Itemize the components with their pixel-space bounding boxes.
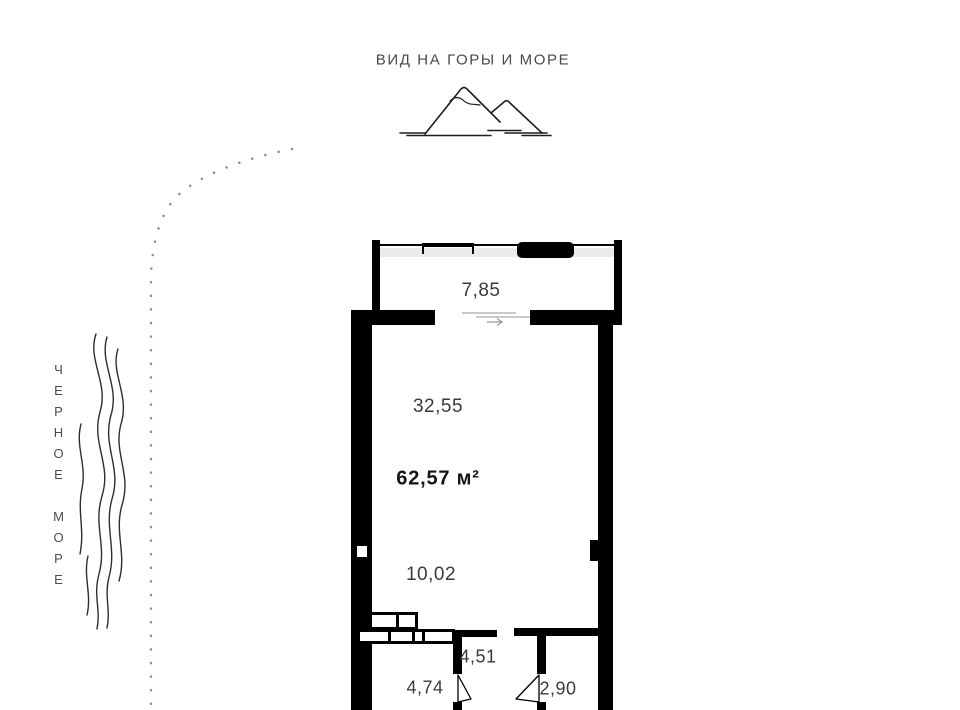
balcony-glazing-band: [380, 248, 616, 257]
mountains-icon: [400, 88, 551, 136]
wall-hall-right: [514, 628, 599, 636]
line-art-layer: [0, 0, 960, 710]
vent-shaft-upper: [369, 612, 418, 630]
balcony-solid-block: [517, 242, 574, 258]
balcony-window-frame: [422, 243, 474, 254]
floorplan-canvas: ВИД НА ГОРЫ И МОРЕ ЧЕРНОЕ МОРЕ 7,85 32,5…: [0, 0, 960, 710]
wall-right-exterior: [598, 325, 613, 710]
vent-shaft-divider: [396, 615, 399, 627]
balcony-glazing-line: [373, 244, 622, 246]
sea-label: ЧЕРНОЕ МОРЕ: [51, 362, 66, 593]
wall-left-notch: [357, 546, 367, 557]
area-label-balcony: 7,85: [462, 280, 501, 302]
wall-hall-store-divider: [537, 634, 546, 674]
area-label-living-room: 32,55: [413, 396, 463, 418]
vent-shaft-lower: [357, 629, 455, 644]
vent-shaft-divider: [412, 632, 415, 641]
area-label-storeroom: 2,90: [539, 679, 576, 700]
wall-top-right: [530, 310, 622, 325]
shoreline-dotted-path-icon: [151, 149, 292, 710]
area-label-kitchen: 10,02: [406, 564, 456, 586]
balcony-post-right: [614, 240, 622, 310]
door-swing-bathroom: [458, 675, 471, 702]
vent-shaft-divider: [422, 632, 425, 641]
sea-waves-icon: [79, 334, 125, 629]
wall-left-exterior: [351, 310, 372, 710]
balcony-post-left: [372, 240, 380, 310]
view-title: ВИД НА ГОРЫ И МОРЕ: [376, 52, 570, 69]
slide-direction-arrow-icon: [487, 319, 502, 326]
wall-right-pilaster: [590, 540, 599, 561]
total-area-label: 62,57 м²: [396, 468, 479, 491]
area-label-bathroom: 4,74: [406, 678, 443, 699]
area-label-hallway: 4,51: [459, 647, 496, 668]
wall-stub-store-bottom: [537, 702, 546, 710]
wall-stub-bath-bottom: [453, 702, 462, 710]
door-swing-storeroom: [516, 675, 539, 702]
balcony-slide-lines: [462, 313, 530, 317]
vent-shaft-divider: [388, 632, 391, 641]
